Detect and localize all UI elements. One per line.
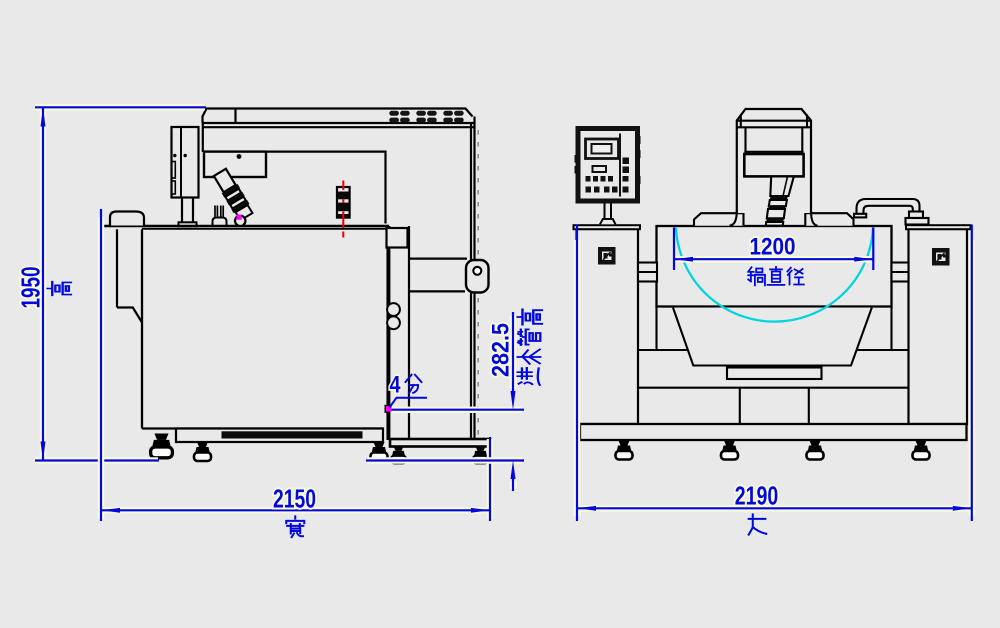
svg-text:2190: 2190 — [735, 481, 779, 511]
svg-text:282.5: 282.5 — [488, 323, 515, 377]
svg-text:1950: 1950 — [16, 267, 46, 309]
svg-text:2150: 2150 — [273, 484, 316, 514]
svg-text:4: 4 — [390, 372, 402, 399]
svg-text:1200: 1200 — [750, 233, 796, 260]
